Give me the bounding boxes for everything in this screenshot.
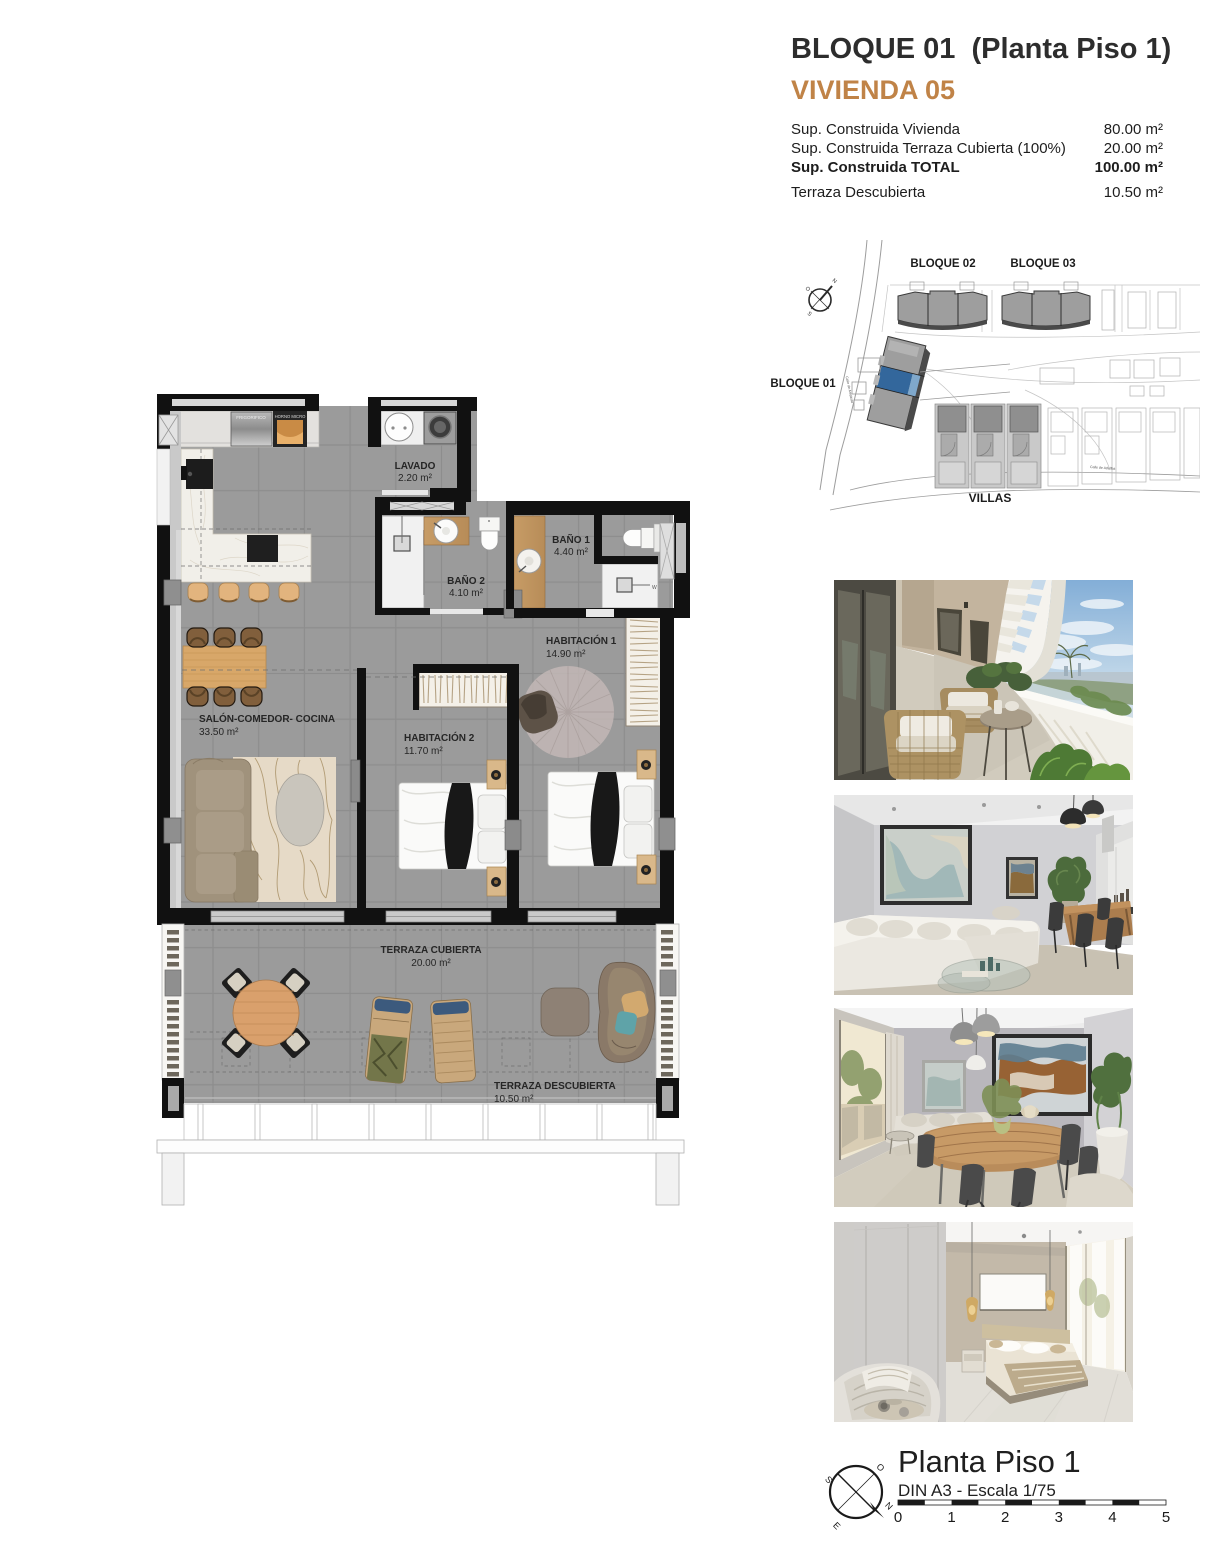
svg-text:TERRAZA DESCUBIERTA: TERRAZA DESCUBIERTA — [494, 1081, 616, 1092]
svg-text:Calle de Adelfas: Calle de Adelfas — [1090, 465, 1116, 471]
svg-text:4.10 m²: 4.10 m² — [449, 588, 484, 599]
svg-text:4.40 m²: 4.40 m² — [554, 547, 589, 558]
svg-text:N: N — [831, 278, 838, 285]
svg-text:S: S — [823, 1474, 834, 1485]
svg-text:1: 1 — [947, 1509, 955, 1526]
svg-text:11.70 m²: 11.70 m² — [404, 746, 443, 757]
svg-text:VILLAS: VILLAS — [969, 491, 1012, 505]
svg-text:SALÓN-COMEDOR- COCINA: SALÓN-COMEDOR- COCINA — [199, 712, 335, 725]
svg-text:3: 3 — [1055, 1509, 1063, 1526]
svg-text:BLOQUE 01: BLOQUE 01 — [770, 378, 836, 390]
svg-text:LAVADO: LAVADO — [395, 461, 436, 472]
svg-text:20.00 m²: 20.00 m² — [411, 958, 451, 969]
svg-text:4: 4 — [1108, 1509, 1116, 1526]
svg-text:HABITACIÓN 1: HABITACIÓN 1 — [546, 634, 617, 647]
svg-text:5: 5 — [1162, 1509, 1170, 1526]
svg-text:HABITACIÓN 2: HABITACIÓN 2 — [404, 731, 475, 744]
svg-text:BAÑO 2: BAÑO 2 — [447, 574, 485, 587]
svg-text:FRIGORIFICO: FRIGORIFICO — [236, 415, 266, 420]
svg-text:33.50 m²: 33.50 m² — [199, 727, 239, 738]
svg-text:14.90 m²: 14.90 m² — [546, 649, 586, 660]
svg-text:BLOQUE 02: BLOQUE 02 — [910, 258, 975, 270]
svg-text:BLOQUE 03: BLOQUE 03 — [1010, 258, 1075, 270]
svg-text:10.50 m²: 10.50 m² — [494, 1094, 534, 1105]
svg-text:E: E — [831, 1520, 842, 1531]
svg-text:S: S — [806, 311, 813, 318]
svg-text:O: O — [804, 286, 812, 294]
svg-text:2.20 m²: 2.20 m² — [398, 473, 433, 484]
svg-text:W: W — [652, 585, 657, 591]
svg-text:BAÑO 1: BAÑO 1 — [552, 533, 590, 546]
svg-text:O: O — [874, 1461, 886, 1473]
svg-text:TERRAZA CUBIERTA: TERRAZA CUBIERTA — [380, 945, 481, 956]
svg-text:0: 0 — [894, 1509, 902, 1526]
svg-text:HORNO MICRO: HORNO MICRO — [275, 414, 306, 419]
svg-text:2: 2 — [1001, 1509, 1009, 1526]
svg-text:Calle de Amatista: Calle de Amatista — [845, 376, 855, 404]
